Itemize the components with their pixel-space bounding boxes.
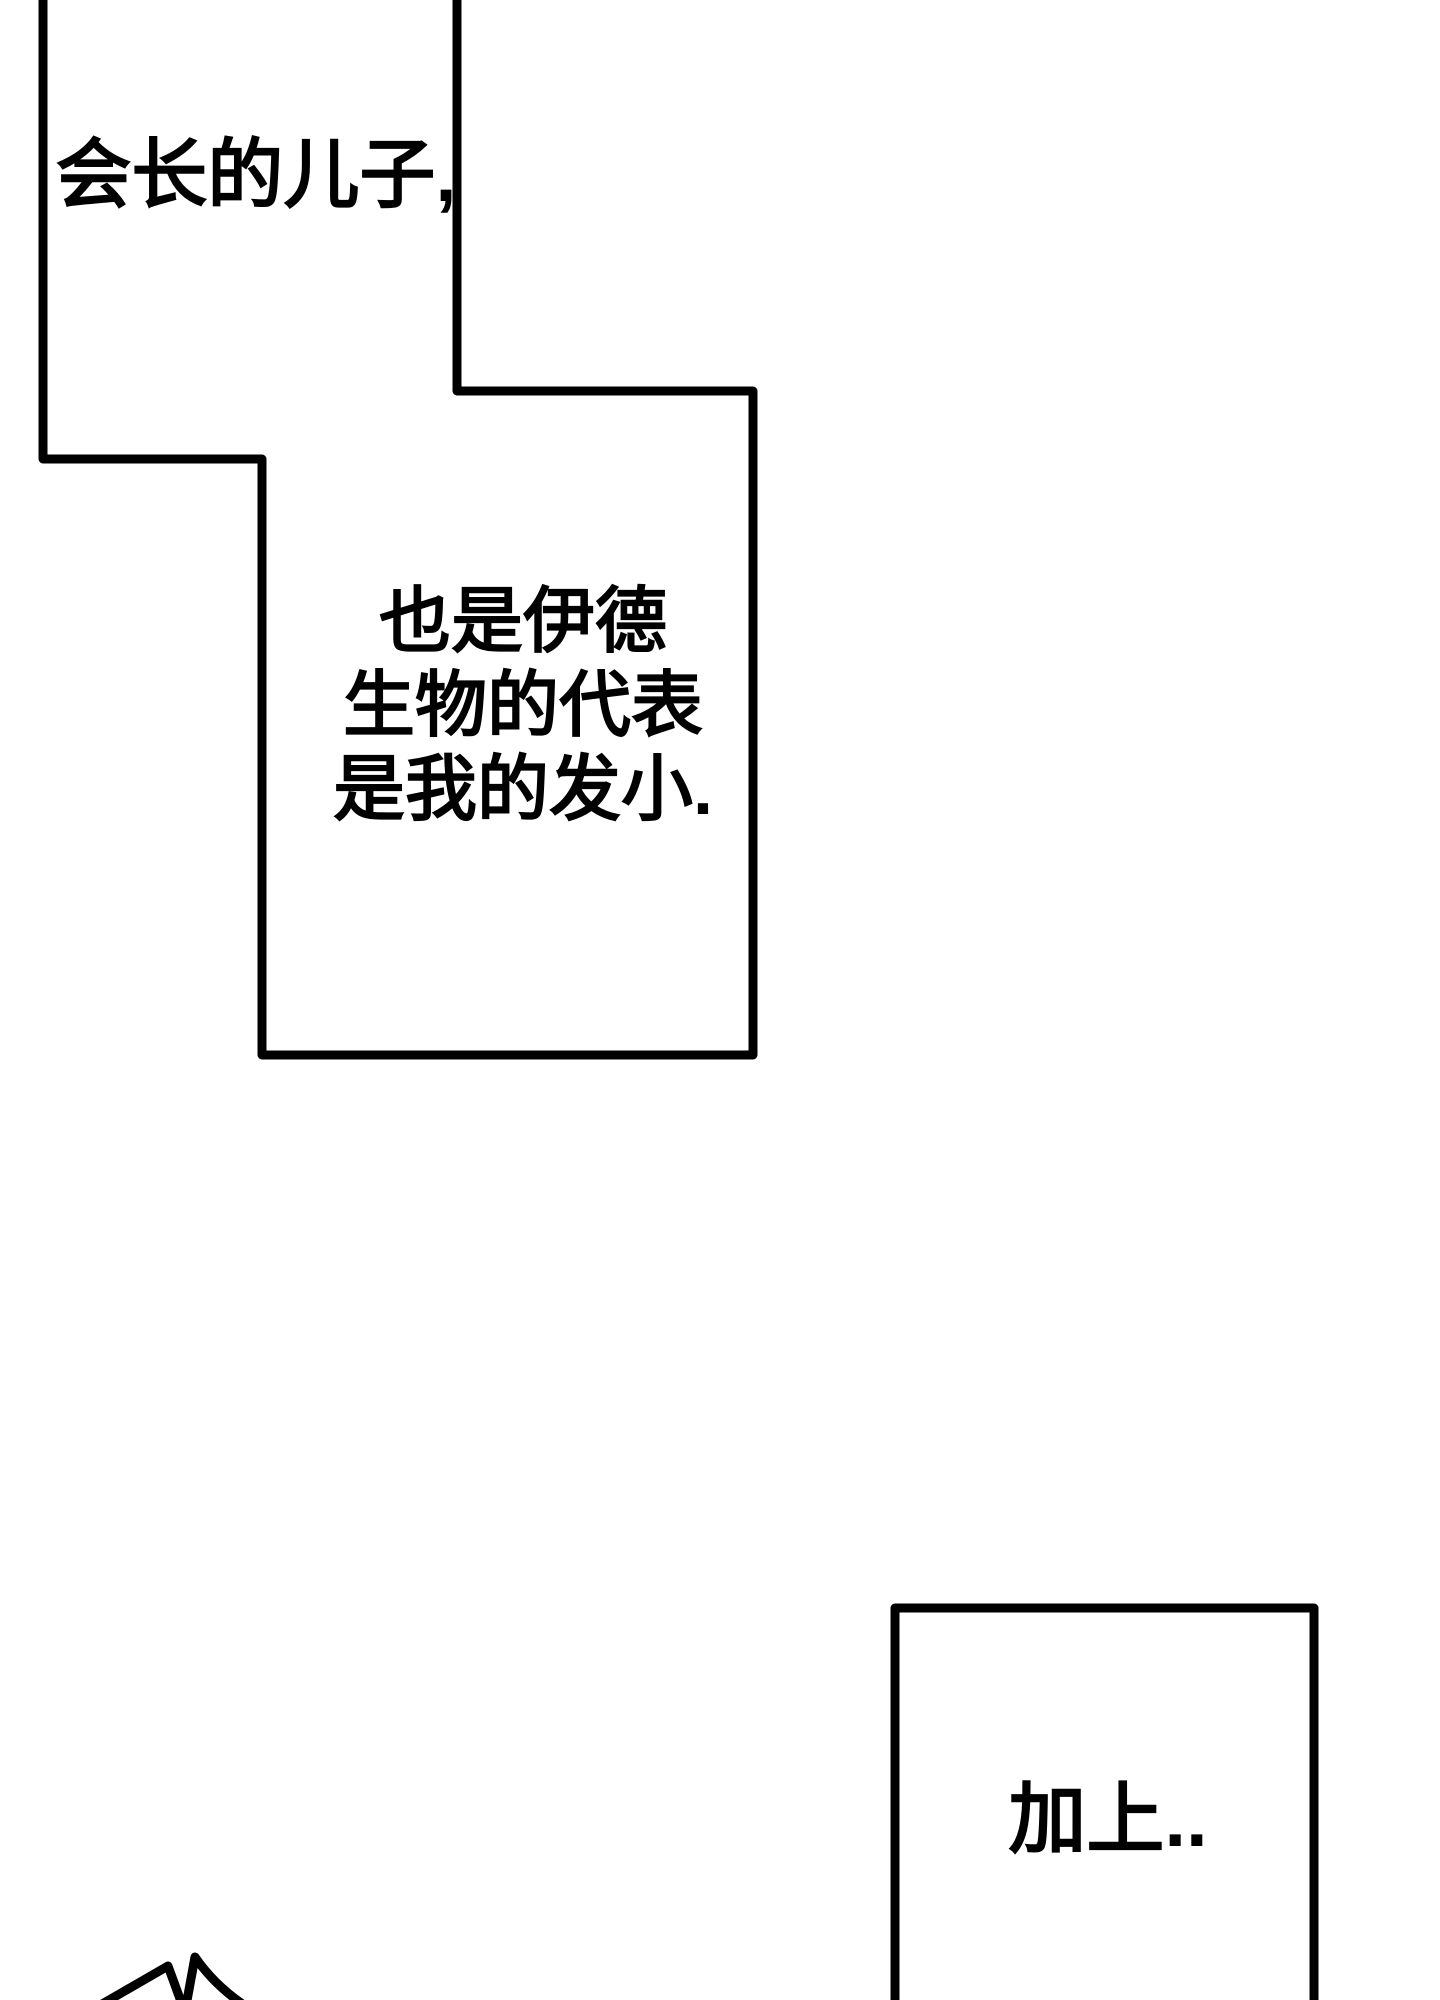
- speech-bubble-tail: [97, 1966, 183, 2000]
- comic-page: 会长的儿子, 也是伊德 生物的代表 是我的发小. 加上..: [0, 0, 1440, 2000]
- dialogue-middle-line-2: 生物的代表: [333, 664, 713, 748]
- speech-bubble-outline: [186, 1957, 553, 2000]
- dialogue-middle-line-1: 也是伊德: [333, 580, 713, 664]
- dialogue-middle-line-3: 是我的发小.: [333, 748, 713, 832]
- dialogue-middle: 也是伊德 生物的代表 是我的发小.: [333, 580, 713, 832]
- panel-borders-layer: [0, 0, 1440, 2000]
- dialogue-bottom-right: 加上..: [1008, 1757, 1207, 1869]
- dialogue-top-left: 会长的儿子,: [55, 113, 456, 223]
